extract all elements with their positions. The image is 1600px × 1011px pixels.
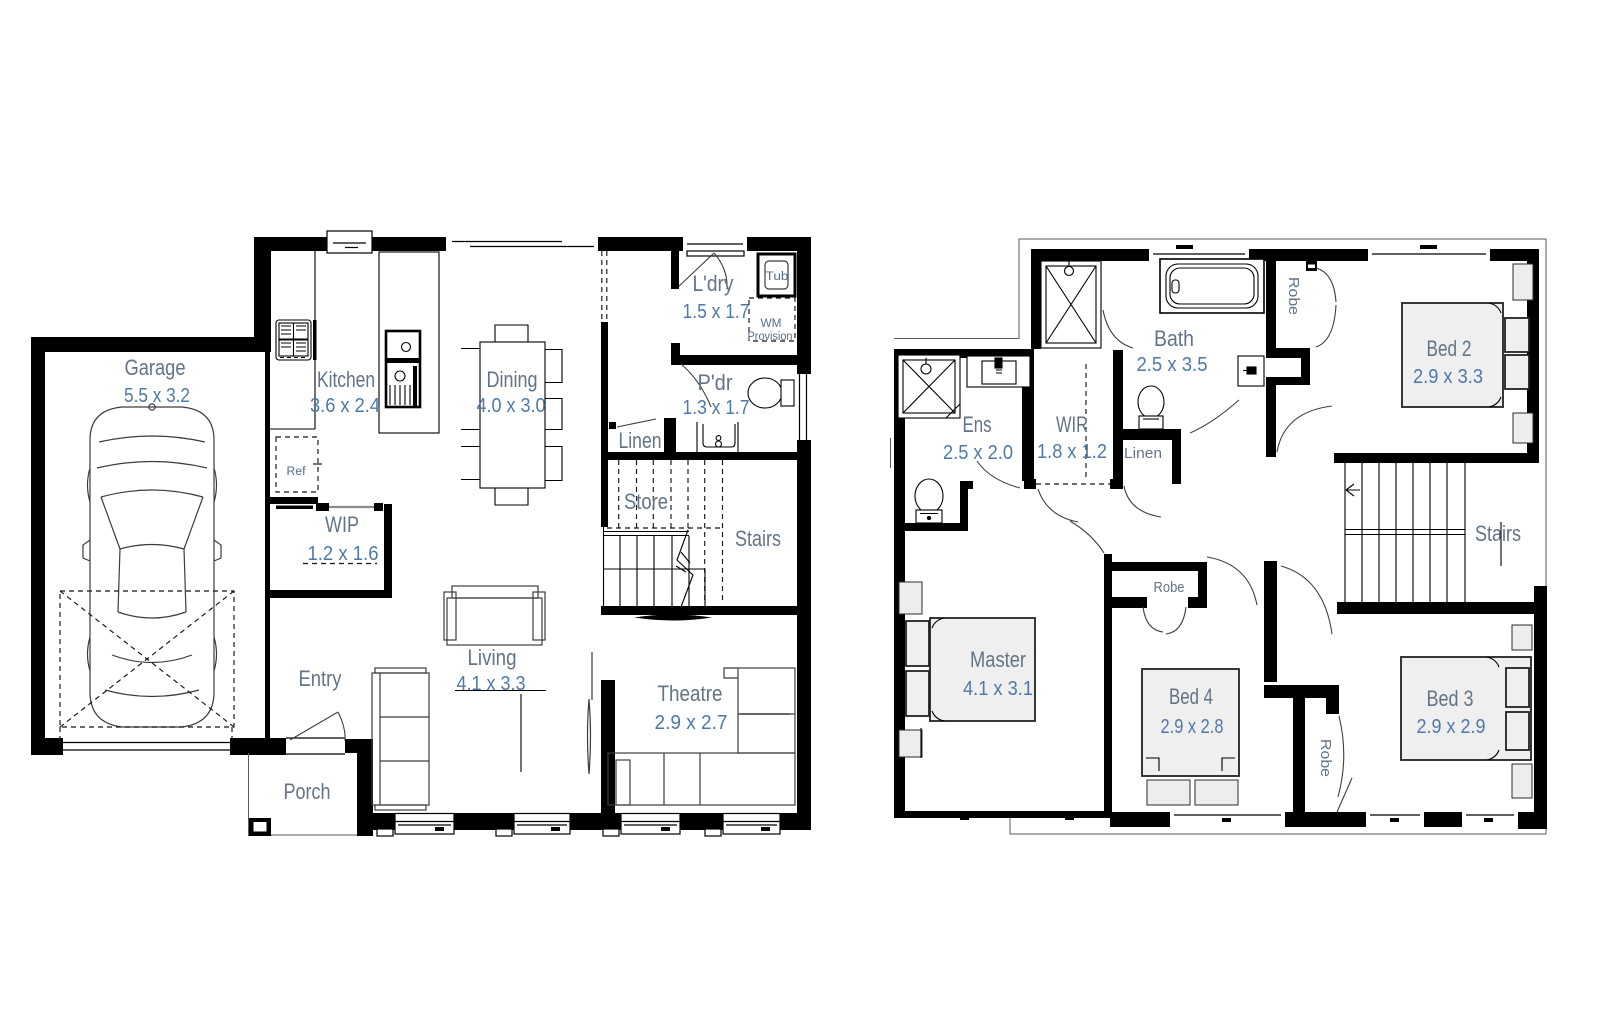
svg-text:2.9 x 2.7: 2.9 x 2.7 [655,711,728,734]
svg-text:Ens: Ens [963,412,992,437]
svg-text:WIR: WIR [1056,412,1088,437]
svg-text:2.9 x 3.3: 2.9 x 3.3 [1413,365,1483,388]
svg-text:Kitchen: Kitchen [317,367,375,392]
svg-text:Store: Store [624,489,668,514]
svg-text:2.9 x 2.8: 2.9 x 2.8 [1161,715,1224,738]
svg-text:2.9 x 2.9: 2.9 x 2.9 [1417,715,1486,738]
svg-text:Master: Master [970,647,1026,672]
svg-text:Linen: Linen [619,428,662,453]
svg-text:Robe: Robe [1285,277,1301,315]
svg-text:1.2 x 1.6: 1.2 x 1.6 [308,542,379,565]
svg-text:Bed 2: Bed 2 [1427,336,1472,361]
svg-text:1.5 x 1.7: 1.5 x 1.7 [683,300,750,323]
svg-text:Living: Living [468,645,517,670]
svg-text:5.5 x 3.2: 5.5 x 3.2 [124,384,190,407]
svg-text:Dining: Dining [487,367,538,392]
svg-text:WIP: WIP [325,512,359,537]
svg-text:1.8 x 1.2: 1.8 x 1.2 [1037,440,1107,463]
svg-text:Entry: Entry [299,666,342,691]
svg-text:Bed 3: Bed 3 [1427,686,1474,711]
svg-text:Bath: Bath [1154,326,1194,351]
svg-text:4.1 x 3.1: 4.1 x 3.1 [963,677,1033,700]
svg-text:Ref: Ref [287,466,307,478]
svg-text:Provision: Provision [748,331,793,343]
svg-text:2.5 x 2.0: 2.5 x 2.0 [943,441,1013,464]
svg-text:Porch: Porch [284,779,331,804]
svg-text:Stairs: Stairs [735,526,781,551]
svg-text:Stairs: Stairs [1475,521,1521,546]
svg-text:Robe: Robe [1317,739,1333,777]
svg-text:2.5 x 3.5: 2.5 x 3.5 [1137,353,1208,376]
svg-text:3.6 x 2.4: 3.6 x 2.4 [310,394,380,417]
svg-text:Tub: Tub [766,271,789,283]
svg-text:Robe: Robe [1154,580,1185,596]
svg-text:WM: WM [761,318,782,330]
svg-text:1.3 x 1.7: 1.3 x 1.7 [683,396,750,419]
svg-text:L'dry: L'dry [693,271,734,296]
svg-text:Garage: Garage [125,355,186,380]
svg-text:P'dr: P'dr [698,370,733,395]
svg-text:4.1 x 3.3: 4.1 x 3.3 [457,672,526,695]
svg-text:Bed 4: Bed 4 [1169,684,1213,709]
svg-text:Theatre: Theatre [658,681,723,706]
svg-text:Linen: Linen [1124,446,1162,462]
svg-text:4.0 x 3.0: 4.0 x 3.0 [477,394,546,417]
